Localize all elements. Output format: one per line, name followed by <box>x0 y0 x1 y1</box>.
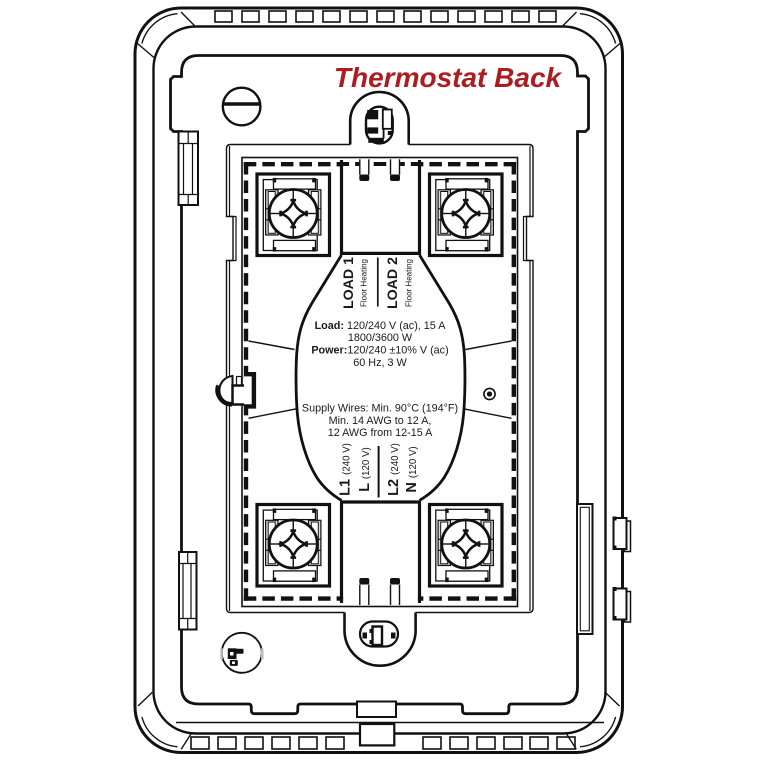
svg-text:Load: 120/240 V (ac), 15 A: Load: 120/240 V (ac), 15 A <box>315 320 447 332</box>
svg-text:Floor Heating: Floor Heating <box>405 259 414 307</box>
svg-text:60 Hz, 3 W: 60 Hz, 3 W <box>353 357 407 369</box>
svg-text:Min. 14 AWG to 12 A,: Min. 14 AWG to 12 A, <box>329 415 432 427</box>
svg-text:12 AWG from 12-15 A: 12 AWG from 12-15 A <box>328 427 433 439</box>
svg-text:1800/3600 W: 1800/3600 W <box>348 332 413 344</box>
svg-text:Power:120/240 ±10% V (ac): Power:120/240 ±10% V (ac) <box>311 344 448 356</box>
svg-text:Floor Heating: Floor Heating <box>360 259 369 307</box>
svg-text:Supply Wires: Min. 90°C (194°F: Supply Wires: Min. 90°C (194°F) <box>302 403 458 415</box>
svg-text:LOAD 1: LOAD 1 <box>341 257 357 309</box>
svg-text:LOAD 2: LOAD 2 <box>385 257 401 309</box>
svg-text:Thermostat Back: Thermostat Back <box>334 62 563 93</box>
